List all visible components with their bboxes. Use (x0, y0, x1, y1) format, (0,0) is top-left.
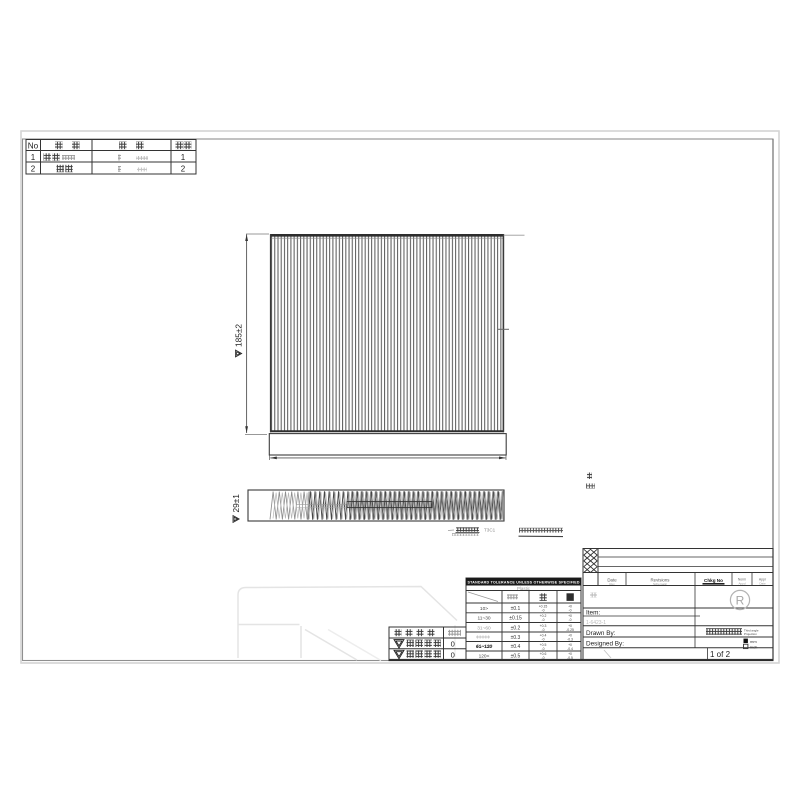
svg-text:-0.4: -0.4 (567, 647, 573, 651)
svg-text:-0.25: -0.25 (566, 628, 574, 632)
svg-text:±0.15: ±0.15 (509, 616, 522, 622)
svg-text:±0.2: ±0.2 (511, 625, 521, 631)
svg-text:±0.3: ±0.3 (511, 635, 521, 641)
svg-text:120<: 120< (479, 653, 490, 659)
svg-text:2: 2 (181, 165, 186, 174)
svg-text:31~60: 31~60 (477, 625, 491, 631)
svg-text:-0: -0 (541, 637, 544, 641)
svg-text:R: R (736, 593, 745, 607)
svg-text:-0: -0 (541, 656, 544, 660)
svg-text:STANDARD TOLERANCE UNLESS OTHE: STANDARD TOLERANCE UNLESS OTHERWISE SPEC… (468, 581, 580, 585)
svg-text:Designed By:: Designed By: (586, 641, 624, 648)
svg-text:1-6423-1: 1-6423-1 (586, 620, 606, 626)
svg-text:-0: -0 (541, 628, 544, 632)
svg-text:185±2: 185±2 (234, 324, 244, 347)
svg-text:-0: -0 (541, 618, 544, 622)
svg-text:No: No (28, 142, 39, 151)
svg-text:Appd: Appd (738, 581, 745, 585)
svg-text:-0: -0 (541, 647, 544, 651)
svg-text:inch: inch (750, 645, 757, 650)
svg-text:Rev: Rev (609, 582, 615, 586)
svg-text:Chkg No: Chkg No (704, 578, 723, 583)
svg-text:Date: Date (759, 581, 766, 585)
svg-text:1: 1 (181, 153, 186, 162)
svg-text:61~120: 61~120 (476, 644, 492, 650)
svg-text:-0.5: -0.5 (567, 656, 573, 660)
svg-text:0: 0 (451, 650, 455, 659)
svg-text:1 of 2: 1 of 2 (710, 650, 731, 659)
svg-text:Projection: Projection (744, 632, 757, 636)
svg-text:10>: 10> (480, 606, 488, 612)
svg-text:±0.1: ±0.1 (511, 606, 521, 612)
svg-text:T3C1: T3C1 (484, 528, 496, 533)
svg-text:Item:: Item: (586, 610, 600, 617)
svg-text:Schematic: Schematic (653, 582, 668, 586)
svg-text:29±1: 29±1 (231, 494, 241, 513)
svg-text:1: 1 (31, 153, 36, 162)
svg-text:-0: -0 (541, 608, 544, 612)
svg-text:-0: -0 (568, 618, 571, 622)
svg-text:-0: -0 (568, 608, 571, 612)
svg-text:±0.5: ±0.5 (511, 653, 521, 659)
svg-text:2: 2 (31, 165, 36, 174)
svg-text:±0.4: ±0.4 (511, 644, 521, 650)
svg-text:Drawn By:: Drawn By: (586, 630, 616, 637)
svg-text:0: 0 (451, 640, 455, 649)
svg-text:-0.3: -0.3 (567, 637, 573, 641)
svg-text:11~30: 11~30 (477, 616, 490, 622)
svg-text:mm: mm (750, 639, 757, 644)
